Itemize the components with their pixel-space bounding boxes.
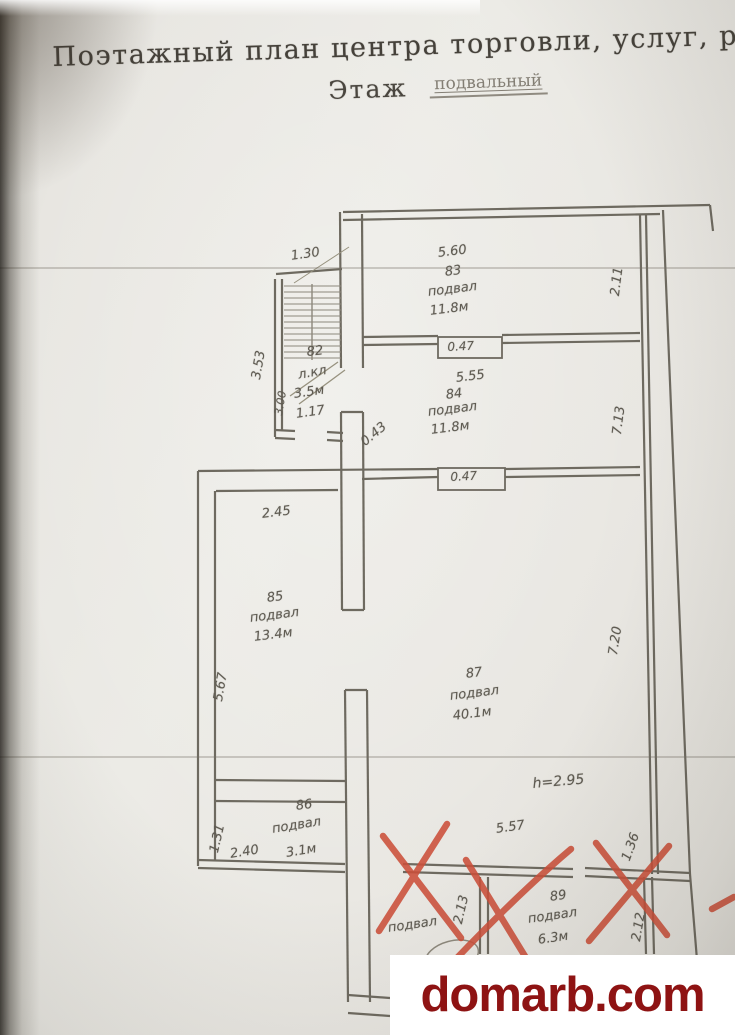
watermark-text: domarb.com: [420, 967, 704, 1023]
room-89-number: 89: [549, 888, 567, 905]
scanned-floor-plan-photo: Поэтажный план центра торговли, услуг, р…: [0, 0, 735, 1035]
watermark-box: domarb.com: [390, 955, 735, 1035]
room-83-number: 83: [444, 263, 462, 280]
red-edge-stroke: [712, 897, 734, 909]
room-87-number: 87: [465, 665, 483, 682]
page-top-highlight: [0, 0, 480, 16]
paper-fold-line-bottom: [0, 756, 735, 758]
stair-number: 82: [306, 343, 324, 360]
room-83-door-dim: 0.47: [447, 339, 474, 354]
room-86-number: 86: [295, 797, 313, 814]
page-topleft-shadow: [0, 0, 160, 200]
paper-fold-line-top: [0, 267, 735, 269]
room-84-door-dim: 0.47: [450, 469, 477, 484]
room-85-number: 85: [266, 589, 284, 606]
